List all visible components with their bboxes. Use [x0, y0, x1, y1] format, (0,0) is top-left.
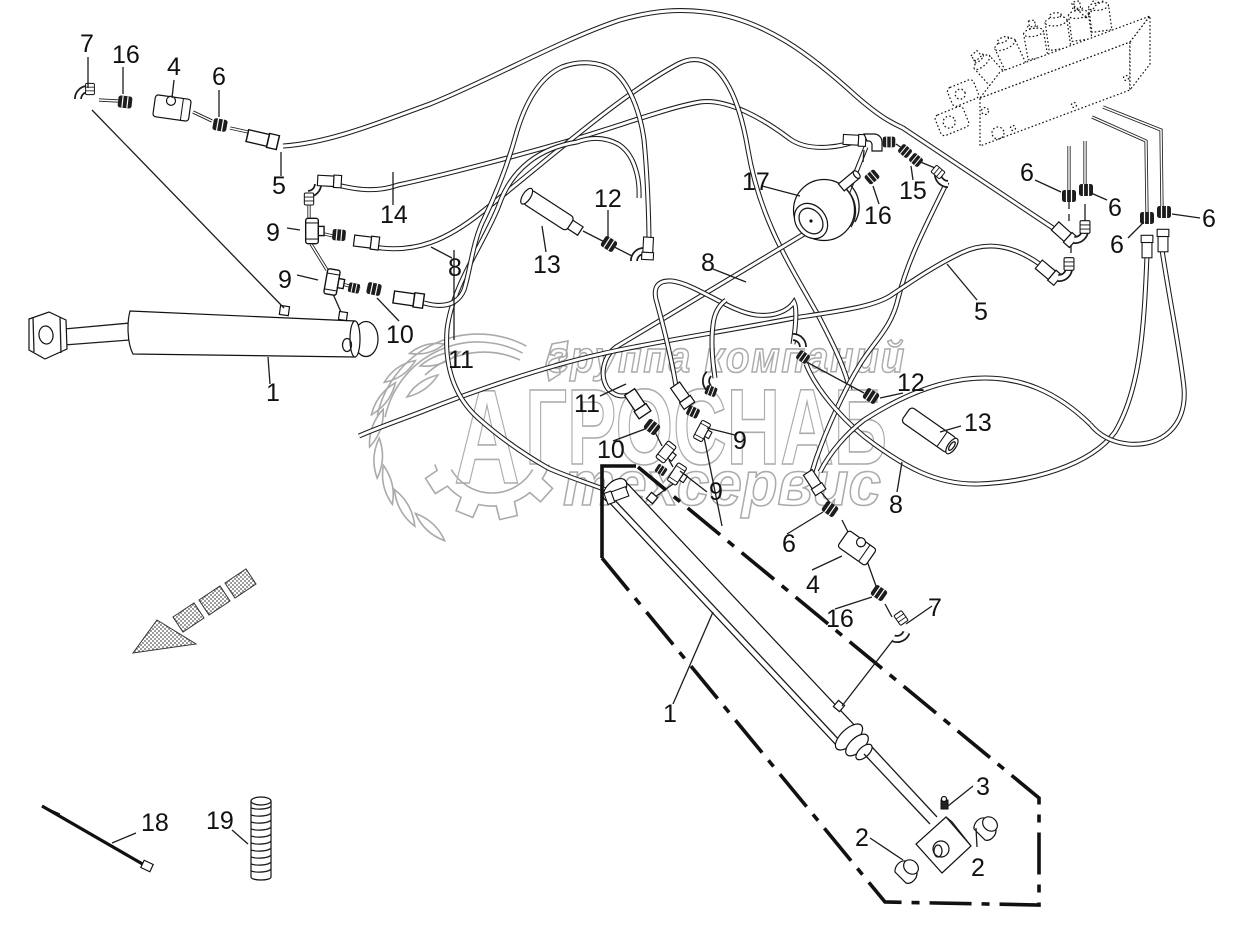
svg-text:4: 4: [167, 53, 181, 81]
svg-text:3: 3: [976, 773, 990, 801]
svg-text:9: 9: [733, 427, 747, 455]
svg-text:6: 6: [1020, 159, 1034, 187]
svg-text:1: 1: [663, 700, 677, 728]
svg-text:9: 9: [709, 478, 723, 506]
svg-text:16: 16: [826, 605, 854, 633]
svg-text:16: 16: [864, 202, 892, 230]
svg-text:9: 9: [266, 219, 280, 247]
svg-text:6: 6: [1110, 231, 1124, 259]
svg-text:11: 11: [574, 390, 600, 418]
svg-text:10: 10: [597, 436, 625, 464]
svg-text:13: 13: [533, 251, 561, 279]
svg-text:4: 4: [806, 571, 820, 599]
svg-text:10: 10: [386, 321, 414, 349]
svg-text:16: 16: [112, 41, 140, 69]
svg-text:19: 19: [206, 807, 234, 835]
svg-text:13: 13: [964, 409, 992, 437]
svg-text:6: 6: [212, 63, 226, 91]
svg-text:18: 18: [141, 809, 169, 837]
svg-text:2: 2: [855, 824, 869, 852]
svg-text:7: 7: [80, 30, 94, 58]
svg-text:7: 7: [928, 594, 942, 622]
svg-text:5: 5: [272, 172, 286, 200]
svg-text:17: 17: [742, 168, 770, 196]
svg-text:8: 8: [448, 254, 462, 282]
svg-text:5: 5: [974, 298, 988, 326]
svg-text:12: 12: [594, 185, 622, 213]
svg-text:9: 9: [278, 266, 292, 294]
svg-text:6: 6: [1108, 194, 1122, 222]
svg-text:15: 15: [899, 177, 927, 205]
svg-text:2: 2: [971, 854, 985, 882]
svg-text:8: 8: [889, 491, 903, 519]
svg-text:12: 12: [897, 369, 925, 397]
svg-text:6: 6: [1202, 205, 1216, 233]
svg-text:11: 11: [448, 346, 474, 374]
svg-text:6: 6: [782, 530, 796, 558]
svg-text:14: 14: [380, 201, 408, 229]
svg-text:1: 1: [266, 379, 280, 407]
svg-text:8: 8: [701, 249, 715, 277]
